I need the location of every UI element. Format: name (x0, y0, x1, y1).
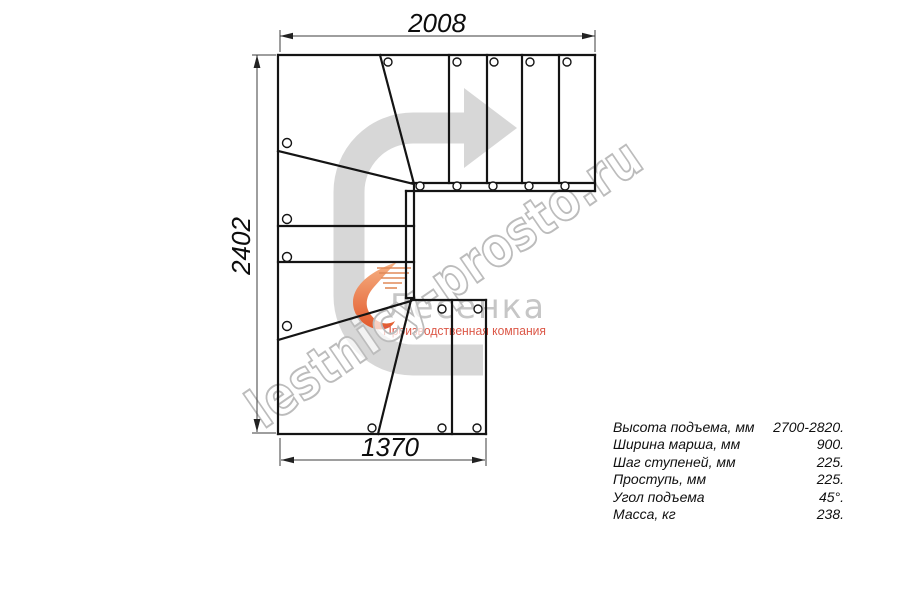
screw-hole (474, 305, 482, 313)
spec-label: Угол подъема (613, 489, 705, 506)
dim-arrow-icon (281, 457, 294, 463)
staircase-drawing-page: Лесенка Производственная компания lestni… (0, 0, 900, 600)
screw-hole (473, 424, 481, 432)
spec-row-mass: Масса, кг 238. (613, 506, 844, 523)
dimension-bottom-value: 1370 (361, 432, 419, 462)
spec-label: Высота подъема, мм (613, 419, 755, 436)
screw-hole (368, 424, 376, 432)
screw-hole (283, 139, 292, 148)
spec-row-angle: Угол подъема 45°. (613, 489, 844, 506)
spec-value: 238. (817, 506, 844, 523)
spec-value: 225. (817, 471, 844, 488)
screw-hole (526, 58, 534, 66)
spec-row-height: Высота подъема, мм 2700-2820. (613, 419, 844, 436)
screw-hole (283, 253, 292, 262)
spec-label: Масса, кг (613, 506, 676, 523)
spec-label: Шаг ступеней, мм (613, 454, 736, 471)
screw-hole (490, 58, 498, 66)
spec-value: 2700-2820. (773, 419, 844, 436)
spec-value: 45°. (819, 489, 844, 506)
dimension-side-value: 2402 (226, 217, 256, 276)
screw-hole (283, 322, 292, 331)
spec-row-tread: Проступь, мм 225. (613, 471, 844, 488)
spec-value: 900. (817, 436, 844, 453)
spec-row-width: Ширина марша, мм 900. (613, 436, 844, 453)
dim-arrow-icon (254, 55, 261, 68)
screw-hole (453, 182, 461, 190)
dim-arrow-icon (280, 33, 293, 39)
screw-hole (453, 58, 461, 66)
dim-arrow-icon (472, 457, 485, 463)
spec-value: 225. (817, 454, 844, 471)
spec-label: Проступь, мм (613, 471, 706, 488)
screw-hole (283, 215, 292, 224)
screw-hole (563, 58, 571, 66)
screw-hole (489, 182, 497, 190)
screw-hole (561, 182, 569, 190)
direction-arrow-head (464, 88, 517, 168)
screw-hole (416, 182, 424, 190)
screw-hole (438, 305, 446, 313)
dim-arrow-icon (582, 33, 595, 39)
dimension-top-value: 2008 (407, 8, 466, 38)
spec-table: Высота подъема, мм 2700-2820. Ширина мар… (613, 419, 844, 523)
screw-hole (438, 424, 446, 432)
screw-hole (525, 182, 533, 190)
spec-row-step: Шаг ступеней, мм 225. (613, 454, 844, 471)
screw-hole (384, 58, 392, 66)
spec-label: Ширина марша, мм (613, 436, 740, 453)
watermark-text: lestnicy-prosto.ru (235, 125, 654, 440)
